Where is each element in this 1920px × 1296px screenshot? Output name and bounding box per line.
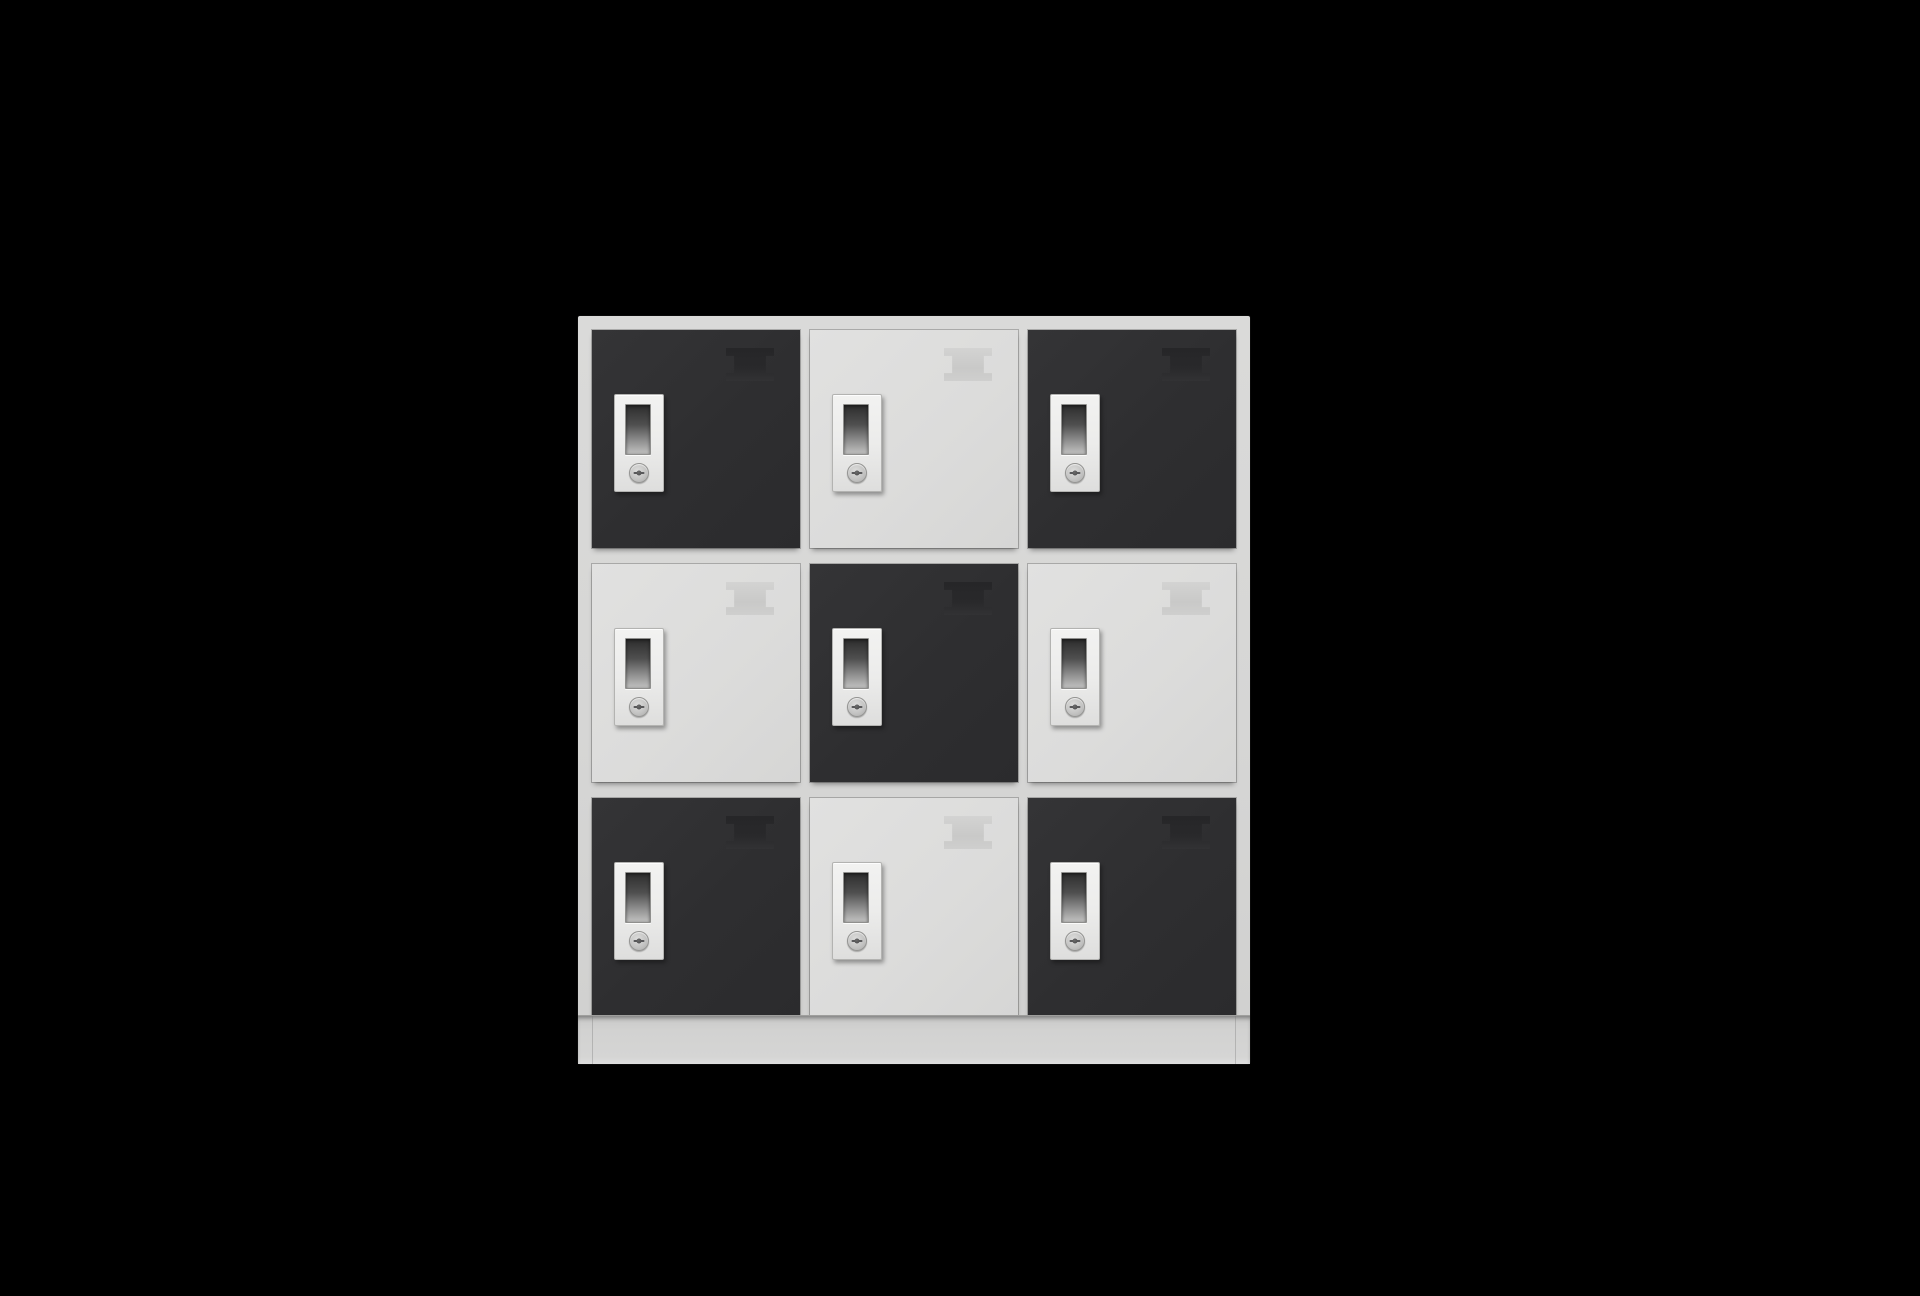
label-slot-vent-icon [944,816,992,849]
door-handle [832,394,882,492]
door-handle [614,628,664,726]
keyhole-dot [1073,705,1078,710]
door-handle [1050,862,1100,960]
locker-door-r1c1 [592,330,800,548]
door-handle [614,394,664,492]
doors-grid [592,330,1236,1016]
handle-grip-recess [1061,404,1087,455]
lock-cylinder [847,931,867,951]
door-handle [832,628,882,726]
locker-cabinet [578,316,1250,1064]
label-slot-vent-icon [1162,582,1210,615]
handle-grip-recess [625,638,651,689]
lock-cylinder [847,463,867,483]
handle-grip-recess [843,872,869,923]
keyhole-dot [637,939,642,944]
keyhole-dot [637,705,642,710]
keyhole-dot [1073,471,1078,476]
label-slot-vent-icon [944,582,992,615]
handle-grip-recess [625,404,651,455]
lock-cylinder [629,931,649,951]
lock-cylinder [1065,931,1085,951]
locker-door-r3c1 [592,798,800,1016]
lock-cylinder [1065,697,1085,717]
label-slot-vent-icon [944,348,992,381]
locker-door-r2c2 [810,564,1018,782]
label-slot-vent-icon [1162,816,1210,849]
locker-door-r1c3 [1028,330,1236,548]
lock-cylinder [629,463,649,483]
keyhole-dot [855,471,860,476]
label-slot-vent-icon [726,582,774,615]
cabinet-base [578,1015,1250,1064]
handle-grip-recess [843,404,869,455]
scene-background [0,0,1920,1296]
label-slot-vent-icon [726,348,774,381]
door-handle [1050,394,1100,492]
locker-door-r1c2 [810,330,1018,548]
keyhole-dot [1073,939,1078,944]
label-slot-vent-icon [726,816,774,849]
locker-door-r2c1 [592,564,800,782]
locker-door-r2c3 [1028,564,1236,782]
keyhole-dot [637,471,642,476]
label-slot-vent-icon [1162,348,1210,381]
door-handle [1050,628,1100,726]
handle-grip-recess [625,872,651,923]
handle-grip-recess [843,638,869,689]
lock-cylinder [1065,463,1085,483]
handle-grip-recess [1061,638,1087,689]
locker-door-r3c2 [810,798,1018,1016]
keyhole-dot [855,939,860,944]
keyhole-dot [855,705,860,710]
handle-grip-recess [1061,872,1087,923]
lock-cylinder [629,697,649,717]
locker-door-r3c3 [1028,798,1236,1016]
door-handle [832,862,882,960]
lock-cylinder [847,697,867,717]
door-handle [614,862,664,960]
